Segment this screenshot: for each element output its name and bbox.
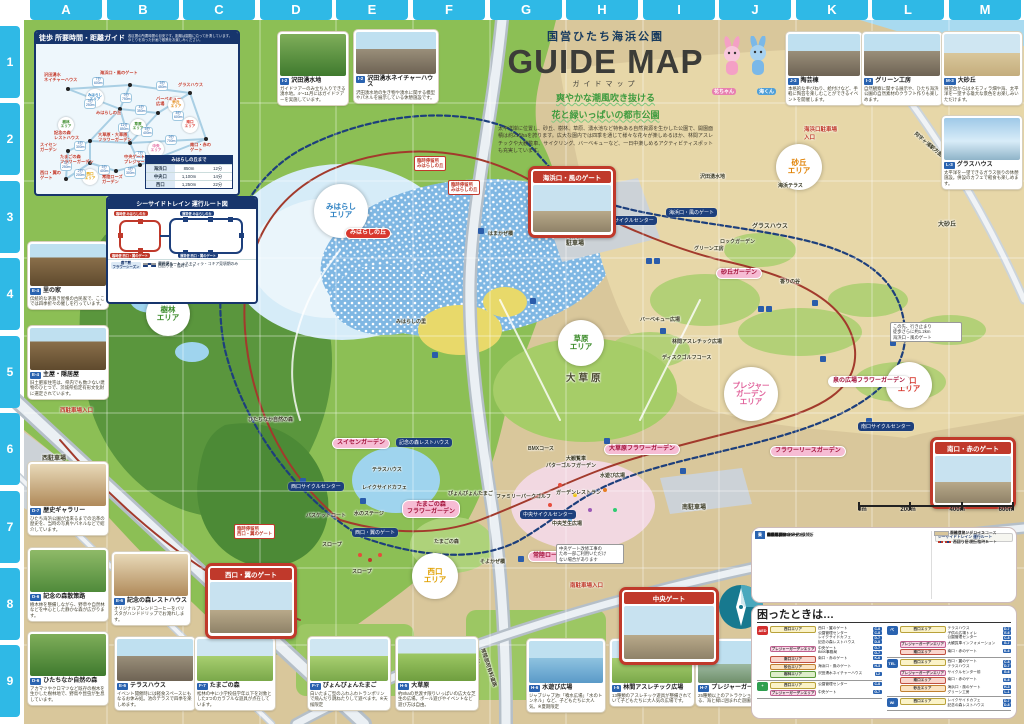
grid-column-tab: M	[949, 0, 1021, 20]
help-entry: テラスハウスD-7	[948, 664, 1012, 669]
grid-row-tab: 1	[0, 26, 20, 98]
grid-column-tab: L	[872, 0, 944, 20]
photo-card: E-4 主屋・隠居屋 旧土肥家住宅は、県内でも数少ない建物のひとつで、茨城県指定…	[28, 326, 108, 399]
walk-time-pill: 7分 600m	[92, 77, 104, 87]
grid-ref-badge: H-7	[698, 685, 709, 692]
walk-time-pill: 3分 300m	[124, 167, 136, 177]
walk-time-pill: 2分 200m	[74, 169, 86, 179]
walk-node-label: 沢田湧水 ネイチャーハウス	[44, 73, 77, 82]
temporary-stop-label: 臨時停留所 みはらしの丘	[448, 180, 480, 195]
facility-label: 海浜口・風のゲート	[666, 208, 717, 217]
garden-label: 泉の広場フラワーガーデン	[828, 376, 910, 387]
map-text-label: スロープ	[352, 570, 372, 576]
train-route-legend: 通常期 周遊便ルート 春・秋 フラワーシーズン 西回り便・臨時ルート 運行便ルー…	[108, 259, 256, 262]
photo-card-description: 松林の中に小学校低学年以下を対象とした3つのカラフルな遊具が点在しています。	[197, 691, 273, 708]
grid-row-tab: 5	[0, 336, 20, 408]
facility-label: 西口・翼のゲート	[352, 528, 398, 537]
photo-card-description: 本格的な手びねり、絵付けなど、手軽に陶芸を楽しむことができるイベントを開催します…	[788, 86, 860, 103]
area-tag: 南口エリア	[770, 656, 816, 663]
photo-card-description: 伝統的な茅葺き屋根の古民家で、ここでは四季折々の催しを行っています。	[30, 296, 106, 307]
catchphrase-1: 爽やかな潮風吹き抜ける	[498, 92, 713, 106]
map-text-label: 大観覧車	[566, 457, 586, 463]
grid-ref-badge: E-6	[114, 598, 125, 605]
map-text-label: 中央芝生広場	[552, 522, 582, 528]
legend-box: WC トイレ WC トイレ(温水洗浄便座) WC トイレ(オストメイト対応) 水…	[752, 528, 1016, 602]
area-tag: プレジャーガーデンエリア	[770, 690, 816, 697]
train-route-diagram: 臨時便 みはらしの丘通常便 みはらしの丘臨時便 西口・翼のゲート通常便 西口・翼…	[108, 209, 256, 259]
train-route-box: シーサイドトレイン 運行ルート図 臨時便 みはらしの丘通常便 みはらしの丘臨時便…	[106, 196, 258, 304]
walk-table-rows: 海浜口850m12分中央口1,100m14分西口1,250m22分	[146, 164, 232, 188]
photo-thumbnail	[529, 641, 603, 683]
help-section-icon: TEL	[887, 659, 898, 668]
grid-ref-badge: D-6	[30, 594, 41, 601]
grid-row-tab: 8	[0, 568, 20, 640]
map-text-label: 大草原	[566, 374, 604, 385]
photo-thumbnail	[788, 34, 860, 76]
photo-card-description: ひたち海浜公園が出来るまでの沿革の歴史を、当時の写真やパネルなどで紹介しています…	[30, 516, 106, 533]
gate-photo	[210, 582, 292, 633]
area-tag: 樹林エリア	[770, 671, 816, 678]
walk-node-label: 常陸ローズ ガーデン	[102, 175, 123, 184]
photo-thumbnail	[30, 550, 106, 592]
photo-card-description: 沢田湧水地の生き物や湧水に関する模型やパネルを展示している休憩施設です。	[356, 90, 436, 101]
walk-node-dot	[204, 137, 208, 141]
walk-table-title: みはらしの丘まで	[146, 156, 232, 164]
grid-column-tab: E	[336, 0, 408, 20]
photo-card-description: 展望台からはネモフィラ畑や海、太平洋を一望する雄大な景色をお楽しみいただけます。	[944, 86, 1020, 103]
legend-routes: シーサイドトレインコース サイクリングコース 園路 一般道路 シーサイドトレイン…	[931, 531, 1013, 599]
photo-card: F-7 たまごの森 松林の中に小学校低学年以下を対象とした3つのカラフルな遊具が…	[195, 637, 275, 710]
help-entry: 大観覧車インフォメーションG-7	[948, 641, 1012, 646]
walk-node-label: 海浜口・風のゲート	[100, 71, 138, 76]
photo-thumbnail	[280, 34, 346, 76]
help-entry: 沢田湧水ネイチャーハウスI-2	[818, 671, 882, 676]
mascot-rabbits-icon	[714, 36, 774, 82]
entrance-label: 西駐車場入口	[60, 406, 93, 414]
walk-node-dot	[114, 169, 118, 173]
photo-card: F-7 ぴょんぴょんたまご 白いたまご型のふわふわトランポリンで飛んだり跳ねたり…	[308, 637, 390, 710]
help-entry: 公園管理センターC-8	[818, 682, 882, 687]
photo-card: H-6 水遊び広場 ジャブジャブ池!「噴水広場」「水のトンネル」など、子どもたち…	[527, 639, 605, 712]
map-text-label: 林間アスレチック広場	[672, 340, 722, 346]
photo-card-description: オリジナルブレンドコーヒーをバリスタがハンドドリップでお淹れします。	[114, 606, 188, 623]
map-text-label: 水遊び広場	[600, 474, 625, 480]
help-entry: グリーン工房L-1	[948, 690, 1012, 695]
gate-callout: 南口・赤のゲート	[930, 437, 1016, 509]
grid-ref-badge: I-2	[356, 76, 365, 83]
map-text-label: 南駐車場	[682, 505, 706, 512]
help-entry: BMX事務局G-7	[818, 650, 882, 655]
walk-time-pill: 5分 450m	[156, 81, 168, 91]
grid-row-tab: 3	[0, 181, 20, 253]
map-text-label: パターゴルフガーデン	[546, 464, 596, 470]
map-text-label: ファミリーパークゴルフ	[496, 495, 551, 501]
gate-callout: 海浜口・風のゲート	[528, 166, 616, 238]
guide-map-page: ABCDEFGHIJKLM 123456789 国営ひたち海浜公園 GUIDE …	[0, 0, 1024, 724]
grid-ref-badge: H-6	[529, 685, 540, 692]
area-tag: プレジャーガーデンエリア	[900, 641, 946, 648]
walk-node-dot	[66, 149, 70, 153]
help-section: ベ西口エリアテラスハウスD-7子供の広場トイレE-6公園管理センターC-8プレジ…	[887, 625, 1012, 658]
park-description: 太平洋岸に位置し、砂丘、樹林、草原、湧水池など特色ある自然資源を生かした公園で、…	[498, 126, 713, 155]
grid-column-tab: K	[796, 0, 868, 20]
walk-guide-box: 徒歩 所要時間・距離ガイド 各区間の所要時間の目安です。距離は園路に沿って計測し…	[34, 30, 240, 196]
scale-tick: 400m	[950, 507, 965, 513]
title-block: 国営ひたち海浜公園 GUIDE MAP ガイドマップ 爽やかな潮風吹き抜ける 花…	[498, 28, 713, 155]
photo-card: H-5 大草原 約8haの見渡す限りいっぱいの広大な芝生の広場。ボール遊びやイベ…	[396, 637, 478, 710]
map-text-label: 大砂丘	[938, 222, 956, 229]
walk-table-row: 西口1,250m22分	[146, 180, 232, 188]
photo-card-title: 大草原	[411, 683, 429, 689]
grid-column-tab: H	[566, 0, 638, 20]
grid-row-tab: 6	[0, 413, 20, 485]
area-label: 草原 エリア	[558, 320, 604, 366]
gate-photo	[624, 606, 714, 659]
help-box: 困ったときは… AED西口エリア西口・翼のゲートC-8公園管理センターC-8レイ…	[752, 606, 1016, 718]
notice-callout: 中央ゲート改修工事の ため一部ご利用いただけ ない場合があります	[556, 544, 624, 564]
grid-column-tab: A	[30, 0, 102, 20]
photo-card: E-6 テラスハウス イベント開催時には軽食スペースにもなるお休み処。池のテラス…	[115, 637, 195, 710]
grid-ref-badge: I-2	[280, 78, 289, 85]
map-text-label: ディスクゴルフコース	[662, 356, 711, 362]
walk-node-dot	[188, 91, 192, 95]
map-text-label: ぴょんぴょんたまご	[448, 492, 493, 498]
walk-table-row: 中央口1,100m14分	[146, 172, 232, 180]
walk-node-dot	[66, 87, 70, 91]
photo-card-title: 記念の森レストハウス	[127, 598, 187, 604]
walk-time-pill: 4分 300m	[74, 141, 86, 151]
walk-node-label: 大草原・大草原 フラワーガーデン	[98, 133, 132, 142]
photo-card-title: 沢田湧水ネイチャーハウス	[367, 76, 436, 89]
help-section-icon: Wi	[887, 698, 898, 707]
help-entry: 南口・赤のゲートK-6	[948, 649, 1012, 654]
map-text-label: バーベキュー広場	[640, 318, 680, 324]
walk-distance-table: みはらしの丘まで 海浜口850m12分中央口1,100m14分西口1,250m2…	[145, 155, 233, 189]
grid-ref-badge: I-5	[612, 685, 621, 692]
grid-ref-badge: F-7	[310, 683, 321, 690]
area-tag: 砂丘エリア	[900, 685, 946, 692]
photo-card: J-3 陶芸棟 本格的な手びねり、絵付けなど、手軽に陶芸を楽しむことができるイベ…	[786, 32, 862, 105]
photo-card-title: 主屋・隠居屋	[43, 372, 79, 378]
photo-card: I-2 沢田湧水ネイチャーハウス 沢田湧水地の生き物や湧水に関する模型やパネルを…	[354, 30, 438, 103]
mascot-name-umi: 海くん	[757, 88, 776, 95]
map-text-label: ガーデンレストラン	[556, 491, 601, 497]
map-text-label: ひたちなか自然の森	[248, 418, 293, 424]
photo-card-title: 歴史ギャラリー	[43, 508, 85, 514]
gate-name: 中央ゲート	[624, 592, 714, 604]
map-text-label: 沢田湧水地	[700, 175, 725, 181]
photo-card: L-3 グラスハウス 太平洋を一望できるガラス張りの休憩施設。併設のカフェで軽食…	[942, 116, 1022, 189]
grid-ref-badge: E-6	[117, 683, 128, 690]
gate-name: 西口・翼のゲート	[210, 568, 292, 580]
garden-label: 大草原フラワーガーデン	[604, 444, 680, 455]
walk-node-label: たまごの森 フラワーガーデン	[60, 155, 94, 164]
photo-card-title: たまごの森	[210, 683, 240, 689]
mascot-name-hana: 花ちゃん	[712, 88, 736, 95]
grid-column-tab: J	[719, 0, 791, 20]
walk-node-label: みはらしの丘	[96, 111, 121, 116]
grid-column-tab: D	[260, 0, 332, 20]
photo-card: I-3 グリーン工房 自然観察に関する展示や、ひたち海浜公園の自然素材のクラフト…	[862, 32, 942, 105]
train-stop-tag: 臨時便 みはらしの丘	[114, 211, 148, 216]
grid-ref-badge: H-5	[398, 683, 409, 690]
route-line-sample	[935, 532, 948, 535]
walk-node-label: 記念の森 レストハウス	[54, 131, 79, 140]
photo-card-description: 13種類のアスレチック遊具が整備されていて子どもたちに大人気の広場です。	[612, 693, 692, 704]
photo-thumbnail	[30, 244, 106, 286]
help-entry: 記念の森レストハウスD-8	[948, 703, 1012, 708]
photo-card-description: ジャブジャブ池!「噴水広場」「水のトンネル」など、子どもたちに大人気。※夏期限定	[529, 693, 603, 710]
facility-label: 中央サイクルセンター	[520, 510, 576, 519]
photo-card-title: 水遊び広場	[542, 685, 572, 691]
photo-card-description: イベント開催時には軽食スペースにもなるお休み処。池のテラスで四季を楽しめます。	[117, 691, 193, 708]
grid-ref-badge: J-3	[788, 78, 799, 85]
walk-table-row: 海浜口850m12分	[146, 164, 232, 172]
map-text-label: グリーン工房	[694, 247, 724, 253]
photo-thumbnail	[197, 639, 273, 681]
help-section: +西口エリア公園管理センターC-8プレジャーガーデンエリア中央ゲートG-7	[757, 681, 882, 699]
map-text-label: BMXコース	[528, 447, 554, 453]
legend-icon: 乗	[755, 531, 765, 539]
photo-card-title: テラスハウス	[130, 683, 166, 689]
gate-callout: 中央ゲート	[619, 587, 719, 665]
train-route-title: シーサイドトレイン 運行ルート図	[108, 198, 256, 209]
page-subtitle: ガイドマップ	[498, 79, 713, 89]
map-text-label: そよかぜ橋	[480, 560, 505, 566]
walk-node-dot	[156, 111, 160, 115]
map-text-label: たまごの森	[434, 540, 459, 546]
grid-row-tab: 9	[0, 645, 20, 717]
facility-label: 西口サイクルセンター	[288, 482, 344, 491]
map-text-label: レイクサイドカフェ	[362, 486, 407, 492]
photo-card-description: 自然観察に関する展示や、ひたち海浜公園の自然素材のクラフト作りも楽しめます。	[864, 86, 940, 103]
area-label: 西口 エリア	[412, 553, 458, 599]
mascots: 花ちゃん 海くん	[712, 36, 776, 95]
entrance-label: 南駐車場入口	[570, 581, 603, 589]
garden-label: みはらしの丘	[345, 228, 391, 239]
walk-time-pill: 3分 250m	[84, 99, 96, 109]
photo-card-description: 太平洋を一望できるガラス張りの休憩施設。併設のカフェで軽食も楽しめます。	[944, 170, 1020, 187]
train-legend-row: 運行便ルート ※ネモフィラ・コキア見頃期のみ	[111, 262, 238, 266]
map-text-label: バスケットコート	[306, 514, 346, 520]
gate-name: 海浜口・風のゲート	[533, 171, 611, 183]
help-entry: 南口・赤のゲートK-6	[818, 656, 882, 661]
walk-node-label: バーベキュー 広場	[156, 97, 181, 106]
grid-ref-badge: E-4	[30, 372, 41, 379]
walk-guide-note: 各区間の所要時間の目安です。距離は園路に沿って計測しています。ゆとりを持った計画…	[128, 34, 235, 42]
photo-card: E-4 里の家 伝統的な茅葺き屋根の古民家で、ここでは四季折々の催しを行っていま…	[28, 242, 108, 309]
map-text-label: 水のステージ	[354, 512, 384, 518]
train-stop-tag: 通常便 西口・翼のゲート	[178, 253, 218, 258]
notice-callout: この先、行き止まり 徒歩さらに約1.2km 海浜口・風のゲート	[890, 322, 962, 342]
walk-time-pill: 8分 600m	[172, 111, 184, 121]
temporary-stop-label: 臨時停留所 みはらしの丘	[414, 156, 446, 171]
area-label: プレジャー ガーデン エリア	[724, 367, 778, 421]
pleasure-garden-area	[511, 460, 655, 550]
photo-card-title: ぴょんぴょんたまご	[323, 683, 377, 689]
grid-ref-badge: D-7	[30, 508, 41, 515]
garden-label: 砂丘ガーデン	[716, 268, 762, 279]
gate-callout: 西口・翼のゲート	[205, 563, 297, 639]
photo-card-title: 林間アスレチック広場	[623, 685, 683, 691]
catchphrase-2: 花と緑いっぱいの都市公園	[498, 109, 713, 123]
grid-column-tab: F	[413, 0, 485, 20]
legend-item: 乗 シーサイドトレイン乗降所	[755, 531, 814, 539]
photo-card-title: グラスハウス	[957, 162, 993, 168]
grid-row-tab: 2	[0, 103, 20, 175]
walk-time-pill: 9分 700m	[165, 135, 177, 145]
page-title: GUIDE MAP	[498, 45, 713, 78]
photo-thumbnail	[356, 32, 436, 74]
photo-card-description: 旧土肥家住宅は、県内でも数少ない建物のひとつで、茨城県指定有形文化財に選定されて…	[30, 380, 106, 397]
help-section-icon: AED	[757, 626, 768, 635]
grid-ref-badge: M-3	[944, 78, 956, 85]
photo-card-title: グリーン工房	[875, 78, 911, 84]
photo-thumbnail	[30, 634, 106, 676]
help-entry: 南口・赤のゲートK-6	[948, 677, 1012, 682]
photo-card-description: アカマツやクロマツなど既存の樹木を生かした樹林地で、野鳥や昆虫が生息しています。	[30, 686, 106, 703]
walk-node-label: スイセン ガーデン	[40, 143, 57, 152]
walk-guide-diagram: みはらし エリア砂丘 エリア草原 エリア樹林 エリア中央 エリア西口 エリア南口…	[38, 47, 236, 192]
walk-node-dot	[64, 177, 68, 181]
grid-column-tab: I	[643, 0, 715, 20]
area-tag: プレジャーガーデンエリア	[770, 646, 816, 653]
walk-node-label: 南口・赤の ゲート	[190, 143, 211, 152]
grid-column-tab: G	[490, 0, 562, 20]
photo-thumbnail	[398, 639, 476, 681]
area-tag: 南口エリア	[900, 649, 946, 656]
map-text-label: スロープ	[322, 543, 342, 549]
walk-time-pill: 9分 750m	[120, 93, 132, 103]
scale-bar: 0m 200m 400m 600m	[858, 505, 1014, 513]
help-section-icon: +	[757, 682, 768, 691]
map-text-label: グラスハウス	[752, 224, 788, 231]
temporary-stop-label: 臨時停留所 西口・翼のゲート	[234, 524, 275, 539]
gate-photo	[533, 185, 611, 232]
photo-card-title: 沢田湧水地	[291, 78, 321, 84]
garden-label: たまごの森 フラワーガーデン	[402, 500, 460, 518]
help-entry: 記念の森レストハウスD-8	[818, 640, 882, 645]
walk-time-pill: 5分 400m	[141, 127, 153, 137]
route-line-sample	[143, 263, 156, 265]
photo-thumbnail	[944, 34, 1020, 76]
legend-items: WC トイレ WC トイレ(温水洗浄便座) WC トイレ(オストメイト対応) 水…	[755, 531, 931, 599]
area-tag: プレジャーガーデンエリア	[900, 670, 946, 677]
photo-card-title: ひたちなか自然の森	[43, 678, 97, 684]
photo-thumbnail	[864, 34, 940, 76]
help-entry: 海浜口・風のゲートH-3	[818, 664, 882, 669]
help-title: 困ったときは…	[757, 609, 1011, 623]
walk-time-pill: 4分 350m	[135, 105, 147, 115]
photo-thumbnail	[114, 554, 188, 596]
sub-legend-route: みはらしの丘 臨時ルート	[938, 540, 997, 544]
area-tag: 西口エリア	[900, 698, 946, 705]
train-stop-tag: 通常便 みはらしの丘	[180, 211, 214, 216]
map-text-label: 香りの谷	[780, 280, 800, 286]
walk-node-dot	[88, 139, 92, 143]
area-tag: 砂丘エリア	[770, 664, 816, 671]
facility-label: 南口サイクルセンター	[858, 422, 914, 431]
photo-card-title: 記念の森散策路	[43, 594, 85, 600]
help-section: Wi西口エリアレイクサイドカフェD-7記念の森レストハウスD-8	[887, 697, 1012, 710]
photo-thumbnail	[30, 328, 106, 370]
garden-label: スイセンガーデン	[332, 438, 390, 449]
photo-card: D-6 記念の森散策路 樹木林を整備しながら、野草や自然林などを中心とした静かな…	[28, 548, 108, 621]
grid-ref-badge: I-3	[864, 78, 873, 85]
park-name: 国営ひたち海浜公園	[498, 28, 713, 44]
help-section: TEL西口エリア西口・翼のゲートC-8テラスハウスD-7プレジャーガーデンエリア…	[887, 658, 1012, 697]
photo-card-description: 約8haの見渡す限りいっぱいの広大な芝生の広場。ボール遊びやイベントなど遊び方は…	[398, 691, 476, 708]
help-entry: サイクルセンター前G-6	[948, 670, 1012, 675]
photo-thumbnail	[30, 464, 106, 506]
photo-card-description: 樹木林を整備しながら、野草や自然林などを中心とした静かな森が広がります。	[30, 602, 106, 619]
photo-card-title: 陶芸棟	[801, 78, 819, 84]
walk-node-label: グラスハウス	[178, 83, 203, 88]
photo-card-description: 白いたまご型のふわふわトランポリンで飛んだり跳ねたりして遊べます。※天候限定	[310, 691, 388, 708]
map-text-label: 海浜テラス	[778, 184, 803, 190]
walk-guide-title: 徒歩 所要時間・距離ガイド	[39, 33, 125, 43]
grid-ref-badge: L-3	[944, 162, 955, 169]
grid-row-tab: 7	[0, 491, 20, 563]
map-text-label: ロックガーデン	[720, 240, 755, 246]
grid-row-tab: 4	[0, 258, 20, 330]
map-text-label: はまかぜ橋	[488, 232, 513, 238]
area-tag: 西口エリア	[770, 626, 816, 633]
grid-ref-badge: D-6	[30, 678, 41, 685]
area-tag: 南口エリア	[900, 677, 946, 684]
map-text-label: テラスハウス	[372, 468, 402, 474]
grid-ref-badge: F-7	[197, 683, 208, 690]
photo-card: I-2 沢田湧水地 ガイドツアーのみ立ち入りできる湧水地。4〜11月にはガイドツ…	[278, 32, 348, 105]
photo-card: M-3 大砂丘 展望台からはネモフィラ畑や海、太平洋を一望する雄大な景色をお楽し…	[942, 32, 1022, 105]
grid-ref-badge: E-4	[30, 288, 41, 295]
help-entry: 中央ゲートG-7	[818, 690, 882, 695]
grid-column-tab: C	[183, 0, 255, 20]
map-text-label: みはらしの里	[396, 320, 426, 326]
photo-thumbnail	[310, 639, 388, 681]
area-tag: 西口エリア	[900, 659, 946, 666]
facility-label: 記念の森レストハウス	[396, 438, 452, 447]
photo-card-description: ガイドツアーのみ立ち入りできる湧水地。4〜11月にはガイドツアーを実施しています…	[280, 86, 346, 103]
grid-column-tab: B	[107, 0, 179, 20]
walk-area-bubble: 南口 エリア	[182, 117, 198, 133]
legend-route-item: 一般道路	[935, 531, 966, 535]
route-line-sample	[938, 541, 951, 543]
help-entry: 公園管理センターC-8	[948, 635, 1012, 640]
photo-card: E-6 記念の森レストハウス オリジナルブレンドコーヒーをバリスタがハンドドリッ…	[112, 552, 190, 625]
photo-card-title: 里の家	[43, 288, 61, 294]
area-tag: 西口エリア	[900, 626, 946, 633]
gate-photo	[935, 456, 1011, 503]
help-section: AED西口エリア西口・翼のゲートC-8公園管理センターC-8レイクサイドカフェD…	[757, 625, 882, 681]
walk-node-label: 西口・翼の ゲート	[40, 171, 61, 180]
area-tag: 西口エリア	[770, 682, 816, 689]
help-section-icon: ベ	[887, 626, 898, 635]
photo-thumbnail	[944, 118, 1020, 160]
entrance-label: 海浜口駐車場 入口	[804, 125, 837, 141]
walk-node-dot	[128, 83, 132, 87]
train-stop-tag: 臨時便 西口・翼のゲート	[110, 253, 150, 258]
garden-label: フラワーリースガーデン	[770, 446, 846, 457]
photo-card: D-7 歴史ギャラリー ひたち海浜公園が出来るまでの沿革の歴史を、当時の写真やパ…	[28, 462, 108, 535]
gate-name: 南口・赤のゲート	[935, 442, 1011, 454]
photo-card-title: 大砂丘	[958, 78, 976, 84]
help-columns: AED西口エリア西口・翼のゲートC-8公園管理センターC-8レイクサイドカフェD…	[757, 625, 1011, 710]
photo-thumbnail	[117, 639, 193, 681]
photo-card: D-6 ひたちなか自然の森 アカマツやクロマツなど既存の樹木を生かした樹林地で、…	[28, 632, 108, 705]
